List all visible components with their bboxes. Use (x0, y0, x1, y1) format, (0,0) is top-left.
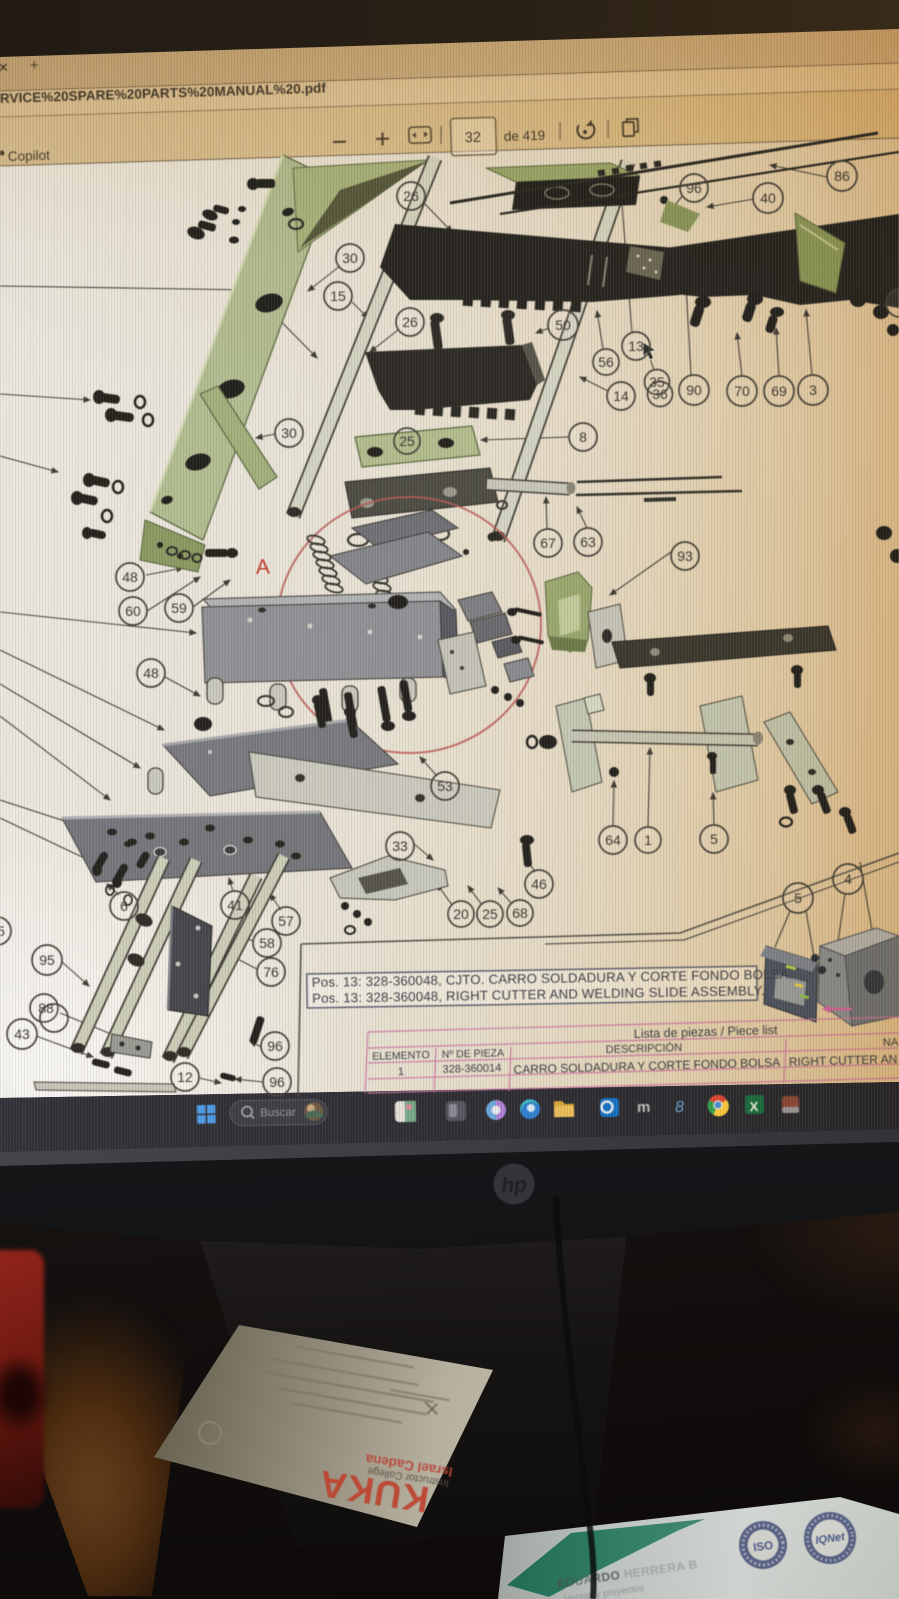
svg-text:64: 64 (605, 832, 621, 848)
svg-text:33: 33 (392, 838, 408, 854)
svg-text:Buscar: Buscar (260, 1107, 296, 1120)
svg-text:60: 60 (125, 603, 141, 619)
svg-text:95: 95 (39, 952, 55, 968)
svg-text:68: 68 (512, 905, 528, 921)
svg-text:NA: NA (883, 1037, 899, 1049)
svg-text:5: 5 (794, 890, 802, 906)
svg-text:96: 96 (686, 180, 702, 196)
svg-text:8: 8 (675, 1099, 684, 1116)
svg-text:CARRO SOLDADURA Y CORTE FONDO: CARRO SOLDADURA Y CORTE FONDO BOLSA (513, 1055, 780, 1076)
svg-text:15: 15 (330, 288, 346, 304)
svg-text:26: 26 (402, 314, 418, 330)
svg-text:25: 25 (399, 433, 415, 449)
svg-text:de 419: de 419 (504, 128, 546, 144)
svg-text:20: 20 (453, 906, 469, 922)
svg-text:93: 93 (677, 548, 693, 564)
svg-text:88: 88 (38, 1000, 54, 1016)
svg-text:hp: hp (501, 1173, 528, 1197)
svg-text:5: 5 (0, 923, 5, 939)
svg-text:48: 48 (122, 569, 138, 585)
svg-text:41: 41 (227, 897, 243, 913)
svg-text:48: 48 (143, 665, 159, 681)
svg-text:4: 4 (844, 871, 852, 887)
svg-text:59: 59 (171, 600, 187, 616)
svg-text:96: 96 (269, 1074, 285, 1090)
svg-text:ELEMENTO: ELEMENTO (372, 1049, 430, 1063)
svg-text:14: 14 (613, 388, 629, 404)
svg-text:X: X (750, 1099, 759, 1114)
svg-text:30: 30 (342, 250, 358, 266)
svg-text:76: 76 (263, 964, 279, 980)
svg-text:✕: ✕ (0, 60, 9, 75)
svg-text:40: 40 (760, 190, 776, 206)
svg-text:32: 32 (465, 130, 482, 146)
svg-text:5: 5 (710, 831, 718, 847)
svg-text:63: 63 (580, 534, 596, 550)
svg-text:36: 36 (652, 386, 668, 402)
svg-text:Lista de piezas / Piece list: Lista de piezas / Piece list (634, 1023, 779, 1041)
svg-text:58: 58 (259, 935, 275, 951)
svg-text:43: 43 (14, 1026, 30, 1042)
svg-text:90: 90 (686, 382, 702, 398)
svg-text:8: 8 (579, 429, 587, 445)
svg-text:30: 30 (281, 425, 297, 441)
svg-text:+: + (30, 57, 40, 74)
svg-text:DESCRIPCIÓN: DESCRIPCIÓN (606, 1041, 683, 1056)
svg-text:Nº DE PIEZA: Nº DE PIEZA (442, 1047, 504, 1061)
svg-text:70: 70 (734, 383, 750, 399)
svg-text:A: A (255, 556, 270, 579)
svg-text:86: 86 (834, 168, 850, 184)
svg-text:13: 13 (628, 338, 644, 354)
svg-text:46: 46 (531, 876, 547, 892)
svg-text:m: m (637, 1099, 651, 1116)
svg-text:69: 69 (771, 383, 787, 399)
svg-text:1: 1 (398, 1066, 404, 1078)
svg-text:Copilot: Copilot (8, 148, 51, 164)
svg-text:96: 96 (267, 1038, 283, 1054)
svg-text:56: 56 (598, 354, 614, 370)
svg-text:67: 67 (540, 535, 556, 551)
svg-text:RVICE%20SPARE%20PARTS%20MANUAL: RVICE%20SPARE%20PARTS%20MANUAL%20.pdf (0, 80, 327, 106)
svg-text:25: 25 (482, 906, 498, 922)
svg-text:53: 53 (437, 778, 453, 794)
svg-text:12: 12 (177, 1069, 193, 1085)
svg-text:26: 26 (403, 188, 419, 204)
svg-text:57: 57 (278, 913, 294, 929)
svg-text:50: 50 (555, 317, 571, 333)
svg-text:1: 1 (644, 832, 652, 848)
svg-text:3: 3 (809, 382, 817, 398)
svg-text:6: 6 (120, 898, 128, 914)
svg-text:RIGHT CUTTER AN: RIGHT CUTTER AN (789, 1052, 898, 1069)
svg-text:328-360014: 328-360014 (442, 1062, 501, 1076)
